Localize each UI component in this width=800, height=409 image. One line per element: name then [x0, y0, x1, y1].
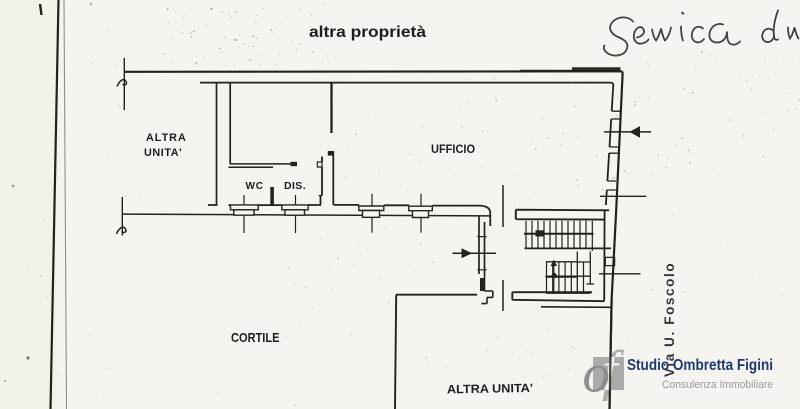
svg-text:UFFICIO: UFFICIO [431, 142, 475, 156]
svg-text:UNITA': UNITA' [144, 147, 182, 159]
svg-text:WC: WC [246, 181, 264, 192]
svg-text:ALTRA: ALTRA [146, 132, 187, 144]
svg-text:ALTRA UNITA': ALTRA UNITA' [447, 381, 533, 397]
svg-text:altra proprietà: altra proprietà [309, 24, 426, 41]
svg-text:Consulenza Immobiliare: Consulenza Immobiliare [662, 379, 773, 391]
svg-text:o: o [583, 343, 611, 404]
svg-text:DIS.: DIS. [284, 180, 306, 192]
svg-text:Studio Ombretta Figini: Studio Ombretta Figini [627, 357, 773, 374]
svg-text:CORTILE: CORTILE [231, 330, 280, 345]
